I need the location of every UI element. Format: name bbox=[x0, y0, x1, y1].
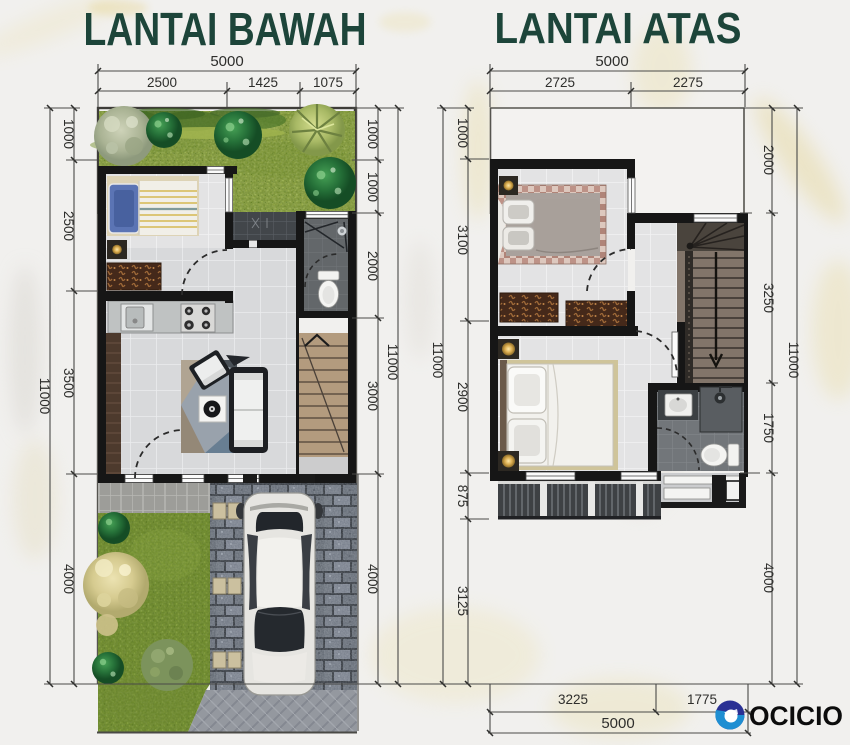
svg-text:2000: 2000 bbox=[761, 145, 776, 175]
svg-text:5000: 5000 bbox=[601, 715, 634, 732]
svg-text:2725: 2725 bbox=[545, 75, 575, 90]
svg-text:2500: 2500 bbox=[147, 75, 177, 90]
svg-text:11000: 11000 bbox=[37, 378, 52, 415]
svg-text:1000: 1000 bbox=[365, 172, 380, 202]
svg-text:OCICIO: OCICIO bbox=[749, 701, 843, 731]
svg-text:2000: 2000 bbox=[365, 251, 380, 281]
svg-text:3225: 3225 bbox=[558, 692, 588, 707]
svg-text:11000: 11000 bbox=[385, 344, 400, 381]
svg-text:4000: 4000 bbox=[61, 564, 76, 594]
svg-text:1750: 1750 bbox=[761, 413, 776, 443]
svg-text:11000: 11000 bbox=[430, 342, 445, 379]
svg-text:5000: 5000 bbox=[210, 53, 243, 70]
svg-text:4000: 4000 bbox=[365, 564, 380, 594]
svg-text:1075: 1075 bbox=[313, 75, 343, 90]
svg-text:2500: 2500 bbox=[61, 211, 76, 241]
svg-text:1000: 1000 bbox=[455, 118, 470, 148]
svg-text:1000: 1000 bbox=[61, 119, 76, 149]
svg-text:3000: 3000 bbox=[365, 381, 380, 411]
svg-text:1775: 1775 bbox=[687, 692, 717, 707]
svg-text:875: 875 bbox=[455, 485, 470, 508]
svg-text:4000: 4000 bbox=[761, 563, 776, 593]
svg-text:2275: 2275 bbox=[673, 75, 703, 90]
svg-text:3250: 3250 bbox=[761, 283, 776, 313]
svg-text:3100: 3100 bbox=[455, 225, 470, 255]
svg-text:1000: 1000 bbox=[365, 119, 380, 149]
svg-text:2900: 2900 bbox=[455, 382, 470, 412]
svg-text:LANTAI BAWAH: LANTAI BAWAH bbox=[84, 3, 367, 55]
svg-text:3125: 3125 bbox=[455, 586, 470, 616]
svg-text:LANTAI ATAS: LANTAI ATAS bbox=[495, 4, 742, 53]
svg-text:1425: 1425 bbox=[248, 75, 278, 90]
svg-text:5000: 5000 bbox=[595, 53, 628, 70]
svg-text:3500: 3500 bbox=[61, 368, 76, 398]
svg-text:11000: 11000 bbox=[786, 342, 801, 379]
